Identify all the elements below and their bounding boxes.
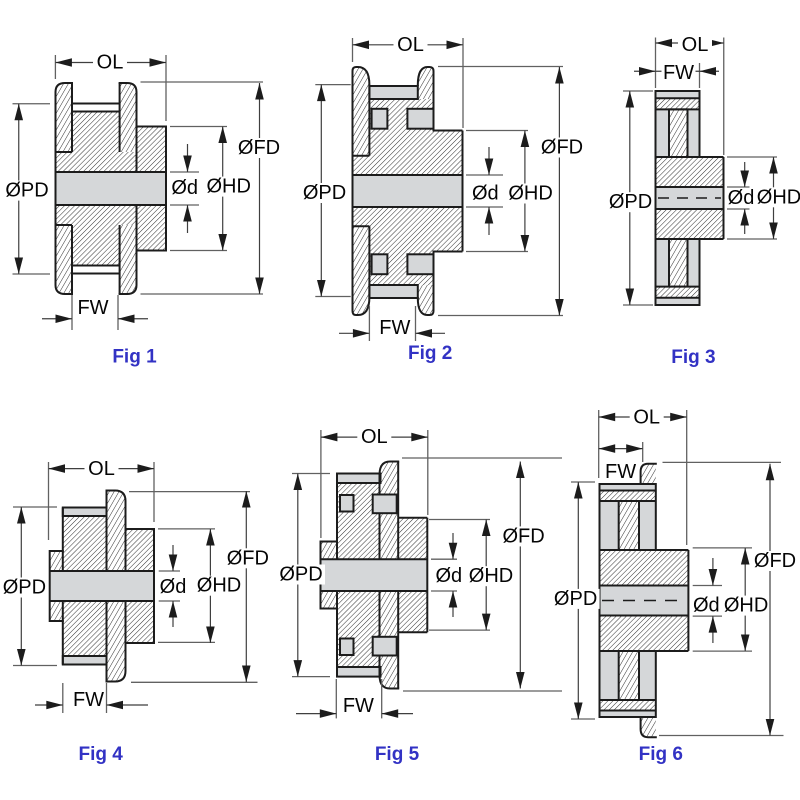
svg-text:Fig 2: Fig 2 [408, 343, 452, 364]
svg-text:ØPD: ØPD [303, 182, 346, 204]
svg-text:ØFD: ØFD [541, 137, 583, 159]
svg-text:FW: FW [605, 461, 636, 483]
svg-text:OL: OL [397, 34, 424, 56]
svg-text:Ød: Ød [693, 595, 720, 617]
svg-text:ØHD: ØHD [724, 595, 768, 617]
svg-text:ØPD: ØPD [609, 191, 652, 213]
svg-text:ØPD: ØPD [5, 180, 48, 202]
svg-text:Ød: Ød [728, 187, 755, 209]
svg-text:Fig 5: Fig 5 [375, 744, 420, 765]
svg-text:Fig 6: Fig 6 [639, 744, 683, 765]
svg-text:ØFD: ØFD [238, 137, 280, 159]
svg-text:ØHD: ØHD [469, 565, 513, 587]
svg-text:FW: FW [73, 689, 104, 711]
svg-text:FW: FW [343, 695, 374, 717]
svg-text:Ød: Ød [472, 183, 499, 205]
svg-text:Fig 1: Fig 1 [112, 347, 157, 368]
svg-text:Fig 4: Fig 4 [79, 744, 124, 765]
svg-text:ØPD: ØPD [3, 577, 46, 599]
svg-text:ØHD: ØHD [757, 186, 800, 208]
svg-text:OL: OL [97, 52, 124, 74]
svg-text:ØHD: ØHD [197, 575, 241, 597]
svg-text:Ød: Ød [160, 576, 187, 598]
svg-text:OL: OL [633, 407, 660, 429]
svg-text:ØPD: ØPD [279, 564, 322, 586]
svg-text:ØHD: ØHD [508, 183, 552, 205]
svg-text:FW: FW [379, 317, 410, 339]
svg-text:FW: FW [663, 62, 694, 84]
svg-text:Ød: Ød [171, 177, 198, 199]
svg-text:ØFD: ØFD [227, 547, 269, 569]
svg-text:Ød: Ød [435, 565, 462, 587]
svg-text:OL: OL [682, 34, 709, 56]
svg-text:FW: FW [77, 297, 108, 319]
svg-text:ØFD: ØFD [502, 525, 544, 547]
svg-text:Fig 3: Fig 3 [671, 347, 715, 368]
svg-text:ØPD: ØPD [554, 588, 597, 610]
svg-text:ØFD: ØFD [754, 550, 796, 572]
svg-text:OL: OL [88, 458, 115, 480]
svg-text:OL: OL [361, 426, 388, 448]
svg-text:ØHD: ØHD [206, 176, 250, 198]
